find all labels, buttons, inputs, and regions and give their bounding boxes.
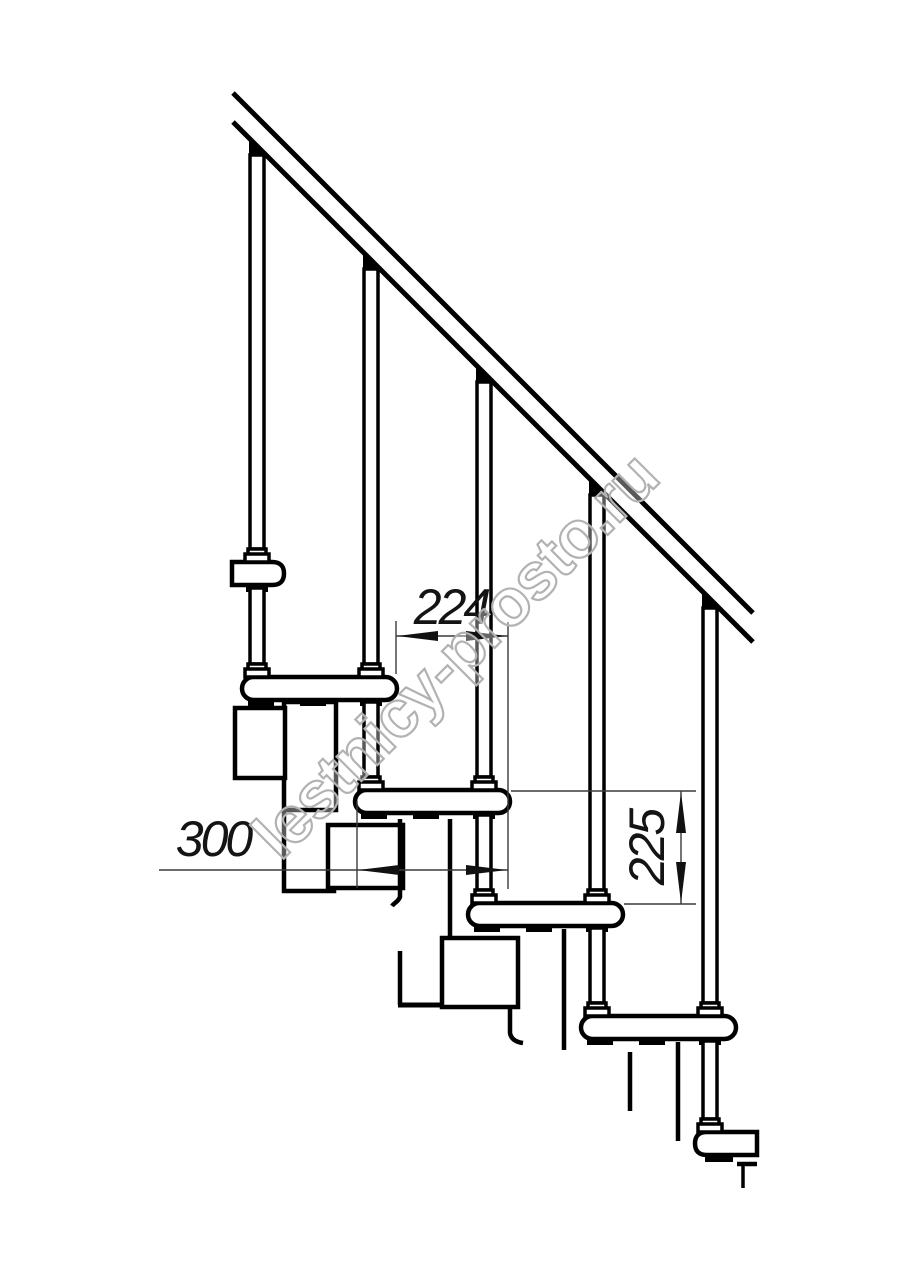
- support-bolt-3: [472, 813, 496, 903]
- support-bolt-5: [698, 1039, 722, 1132]
- foot-base: [585, 1008, 609, 1016]
- tab: [639, 1038, 665, 1045]
- drawing-svg: 224 300 225 lestnicy-prosto.ru: [0, 0, 914, 1280]
- module-box-2: [442, 938, 518, 1007]
- tread-5: [695, 1132, 757, 1155]
- bolt-rod: [703, 1041, 717, 1119]
- foot-base: [472, 895, 496, 903]
- baluster-2: [359, 251, 383, 677]
- dimension-value-225: 225: [619, 808, 675, 887]
- handrail: [233, 93, 753, 642]
- tread-3: [468, 903, 623, 926]
- tread-2: [355, 790, 510, 813]
- foot-base: [585, 895, 609, 903]
- staircase-technical-drawing: 224 300 225 lestnicy-prosto.ru: [0, 0, 914, 1280]
- module-box-1: [328, 825, 403, 888]
- tab: [474, 925, 500, 932]
- arrow-up-icon: [676, 792, 686, 833]
- foot-base: [359, 669, 383, 677]
- bolt-rod: [250, 588, 264, 664]
- foot-base: [472, 782, 496, 790]
- tab: [526, 925, 552, 932]
- baluster-rod: [250, 155, 264, 549]
- bolt-rod: [477, 815, 491, 890]
- support-bolt-1: [245, 586, 269, 677]
- bolt-rod: [590, 928, 604, 1003]
- baluster-rod: [703, 608, 717, 1003]
- arrow-down-icon: [676, 862, 686, 903]
- tab: [413, 812, 439, 819]
- tab: [587, 1038, 613, 1045]
- foot-base: [698, 1124, 722, 1132]
- handrail-upper-line: [233, 93, 753, 613]
- tab: [248, 699, 274, 706]
- support-bolt-4: [585, 926, 609, 1016]
- tread-0: [232, 562, 284, 585]
- module-plate-3-left-edge: [510, 1007, 523, 1043]
- tab: [300, 699, 326, 706]
- foot-base: [698, 1008, 722, 1016]
- foot-base: [245, 554, 269, 562]
- tread-4: [581, 1016, 736, 1039]
- foot-base: [245, 669, 269, 677]
- module-box-upper: [235, 708, 285, 778]
- tab: [361, 812, 387, 819]
- baluster-1: [245, 137, 269, 562]
- baluster-5: [698, 590, 722, 1016]
- baluster-rod: [364, 269, 378, 664]
- tab: [705, 1154, 733, 1162]
